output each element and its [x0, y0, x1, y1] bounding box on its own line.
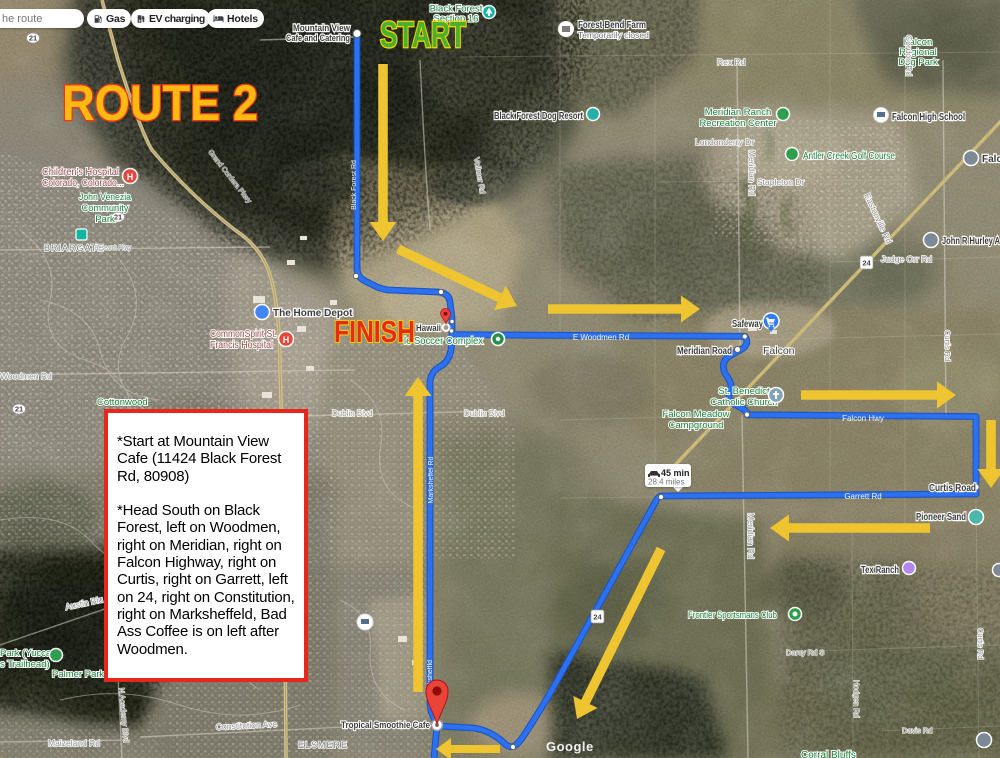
svg-text:Temporarily closed: Temporarily closed	[578, 30, 649, 40]
svg-text:Community: Community	[82, 203, 129, 214]
svg-text:Park: Park	[95, 214, 115, 225]
svg-text:Corral Bluffs: Corral Bluffs	[801, 750, 856, 758]
svg-text:Dublin Blvd: Dublin Blvd	[332, 409, 372, 418]
svg-text:Garrett Rd: Garrett Rd	[844, 492, 881, 501]
svg-text:s Trailhead): s Trailhead)	[0, 659, 50, 670]
svg-text:45 min: 45 min	[661, 468, 690, 478]
svg-text:Recreation Center: Recreation Center	[699, 118, 776, 129]
svg-text:Cordon Rd: Cordon Rd	[904, 35, 914, 76]
svg-text:John R Hurley A: John R Hurley A	[942, 236, 1000, 247]
svg-text:Frontier Sportsmans Club: Frontier Sportsmans Club	[688, 610, 777, 621]
svg-text:Dublin Blvd: Dublin Blvd	[464, 409, 504, 418]
svg-text:28.4 miles: 28.4 miles	[648, 478, 684, 487]
svg-text:E Woodmen Rd: E Woodmen Rd	[573, 333, 629, 342]
svg-text:Black Forest Rd: Black Forest Rd	[351, 160, 358, 210]
svg-text:le Soccer Complex: le Soccer Complex	[404, 336, 483, 347]
svg-text:St. Benedict: St. Benedict	[718, 386, 770, 397]
svg-text:21: 21	[15, 405, 23, 414]
svg-text:H: H	[127, 172, 134, 182]
svg-text:21: 21	[29, 34, 37, 43]
svg-text:Darcy Rd S: Darcy Rd S	[786, 648, 824, 657]
svg-text:Falcon High School: Falcon High School	[892, 112, 965, 123]
svg-text:Google: Google	[546, 739, 594, 754]
svg-text:24: 24	[862, 259, 871, 268]
svg-text:Hodgen Rd: Hodgen Rd	[852, 680, 861, 718]
svg-text:Francis Hospital: Francis Hospital	[210, 340, 273, 351]
svg-text:START: START	[380, 14, 466, 55]
svg-text:Colorado, Colorado...: Colorado, Colorado...	[42, 178, 124, 189]
svg-text:Campground: Campground	[669, 420, 724, 431]
svg-text:Cafe and Catering: Cafe and Catering	[286, 33, 350, 44]
svg-text:Park (Yucca: Park (Yucca	[0, 648, 52, 659]
svg-text:Meridian Ranch: Meridian Ranch	[705, 107, 772, 118]
svg-text:Meridian Rd: Meridian Rd	[746, 513, 756, 559]
svg-text:Curtis Road: Curtis Road	[929, 483, 976, 494]
svg-text:Meridian Rd: Meridian Rd	[747, 150, 757, 196]
svg-text:Falcon: Falcon	[763, 345, 795, 357]
svg-text:Tex Ranch: Tex Ranch	[861, 565, 899, 576]
svg-text:Curtis Rd: Curtis Rd	[943, 330, 952, 361]
svg-text:Tropical Smoothie Cafe: Tropical Smoothie Cafe	[341, 720, 430, 731]
svg-text:Pioneer Sand: Pioneer Sand	[916, 512, 966, 523]
svg-text:Curtis Rd: Curtis Rd	[976, 628, 985, 659]
svg-text:John Venezia: John Venezia	[79, 192, 132, 203]
svg-text:Black Forest Dog Resort: Black Forest Dog Resort	[494, 111, 584, 122]
svg-text:ELSMERE: ELSMERE	[298, 740, 348, 750]
svg-text:CommonSpirit St.: CommonSpirit St.	[210, 329, 277, 340]
svg-text:Antler Creek Golf Course: Antler Creek Golf Course	[803, 151, 895, 162]
svg-text:Londonderry Dr: Londonderry Dr	[695, 137, 754, 147]
svg-text:Hawaii: Hawaii	[416, 323, 441, 333]
svg-text:Catholic Church: Catholic Church	[710, 397, 778, 408]
svg-text:ROUTE 2: ROUTE 2	[62, 75, 258, 131]
svg-text:Marksheffel Rd: Marksheffel Rd	[428, 456, 435, 503]
svg-text:Falcon Meadow: Falcon Meadow	[662, 409, 729, 420]
svg-text:Rex Rd: Rex Rd	[717, 57, 746, 67]
svg-text:Cottonwood: Cottonwood	[97, 397, 148, 408]
svg-text:Davis Rd: Davis Rd	[902, 726, 932, 735]
svg-text:Judge Orr Rd: Judge Orr Rd	[881, 254, 932, 264]
svg-text:FINISH: FINISH	[334, 315, 415, 349]
svg-text:Research Pkwy: Research Pkwy	[95, 243, 131, 252]
svg-text:Children's Hospital: Children's Hospital	[42, 167, 119, 178]
svg-text:Meridian Road: Meridian Road	[677, 346, 732, 357]
svg-text:Palmer Park: Palmer Park	[52, 669, 105, 680]
svg-text:Safeway: Safeway	[732, 319, 763, 330]
svg-text:Falcon Hwy: Falcon Hwy	[842, 414, 884, 423]
svg-text:Stapleton Dr: Stapleton Dr	[757, 177, 804, 187]
svg-text:H: H	[283, 335, 290, 345]
svg-text:Falc: Falc	[982, 154, 1000, 165]
svg-text:Maizeland Rd: Maizeland Rd	[48, 738, 100, 748]
svg-text:24: 24	[593, 613, 602, 622]
svg-text:Woodmen Rd: Woodmen Rd	[0, 371, 52, 381]
